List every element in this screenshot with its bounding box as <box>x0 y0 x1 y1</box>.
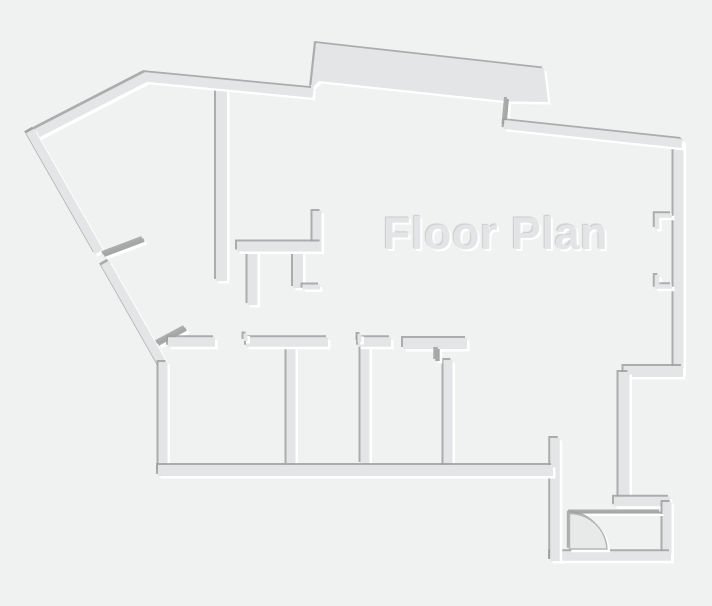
floor-background <box>0 0 712 606</box>
floor-plan-page: Floor Plan <box>0 0 712 606</box>
floor-plan-canvas <box>0 0 712 606</box>
floor-plan-title: Floor Plan <box>383 211 608 256</box>
